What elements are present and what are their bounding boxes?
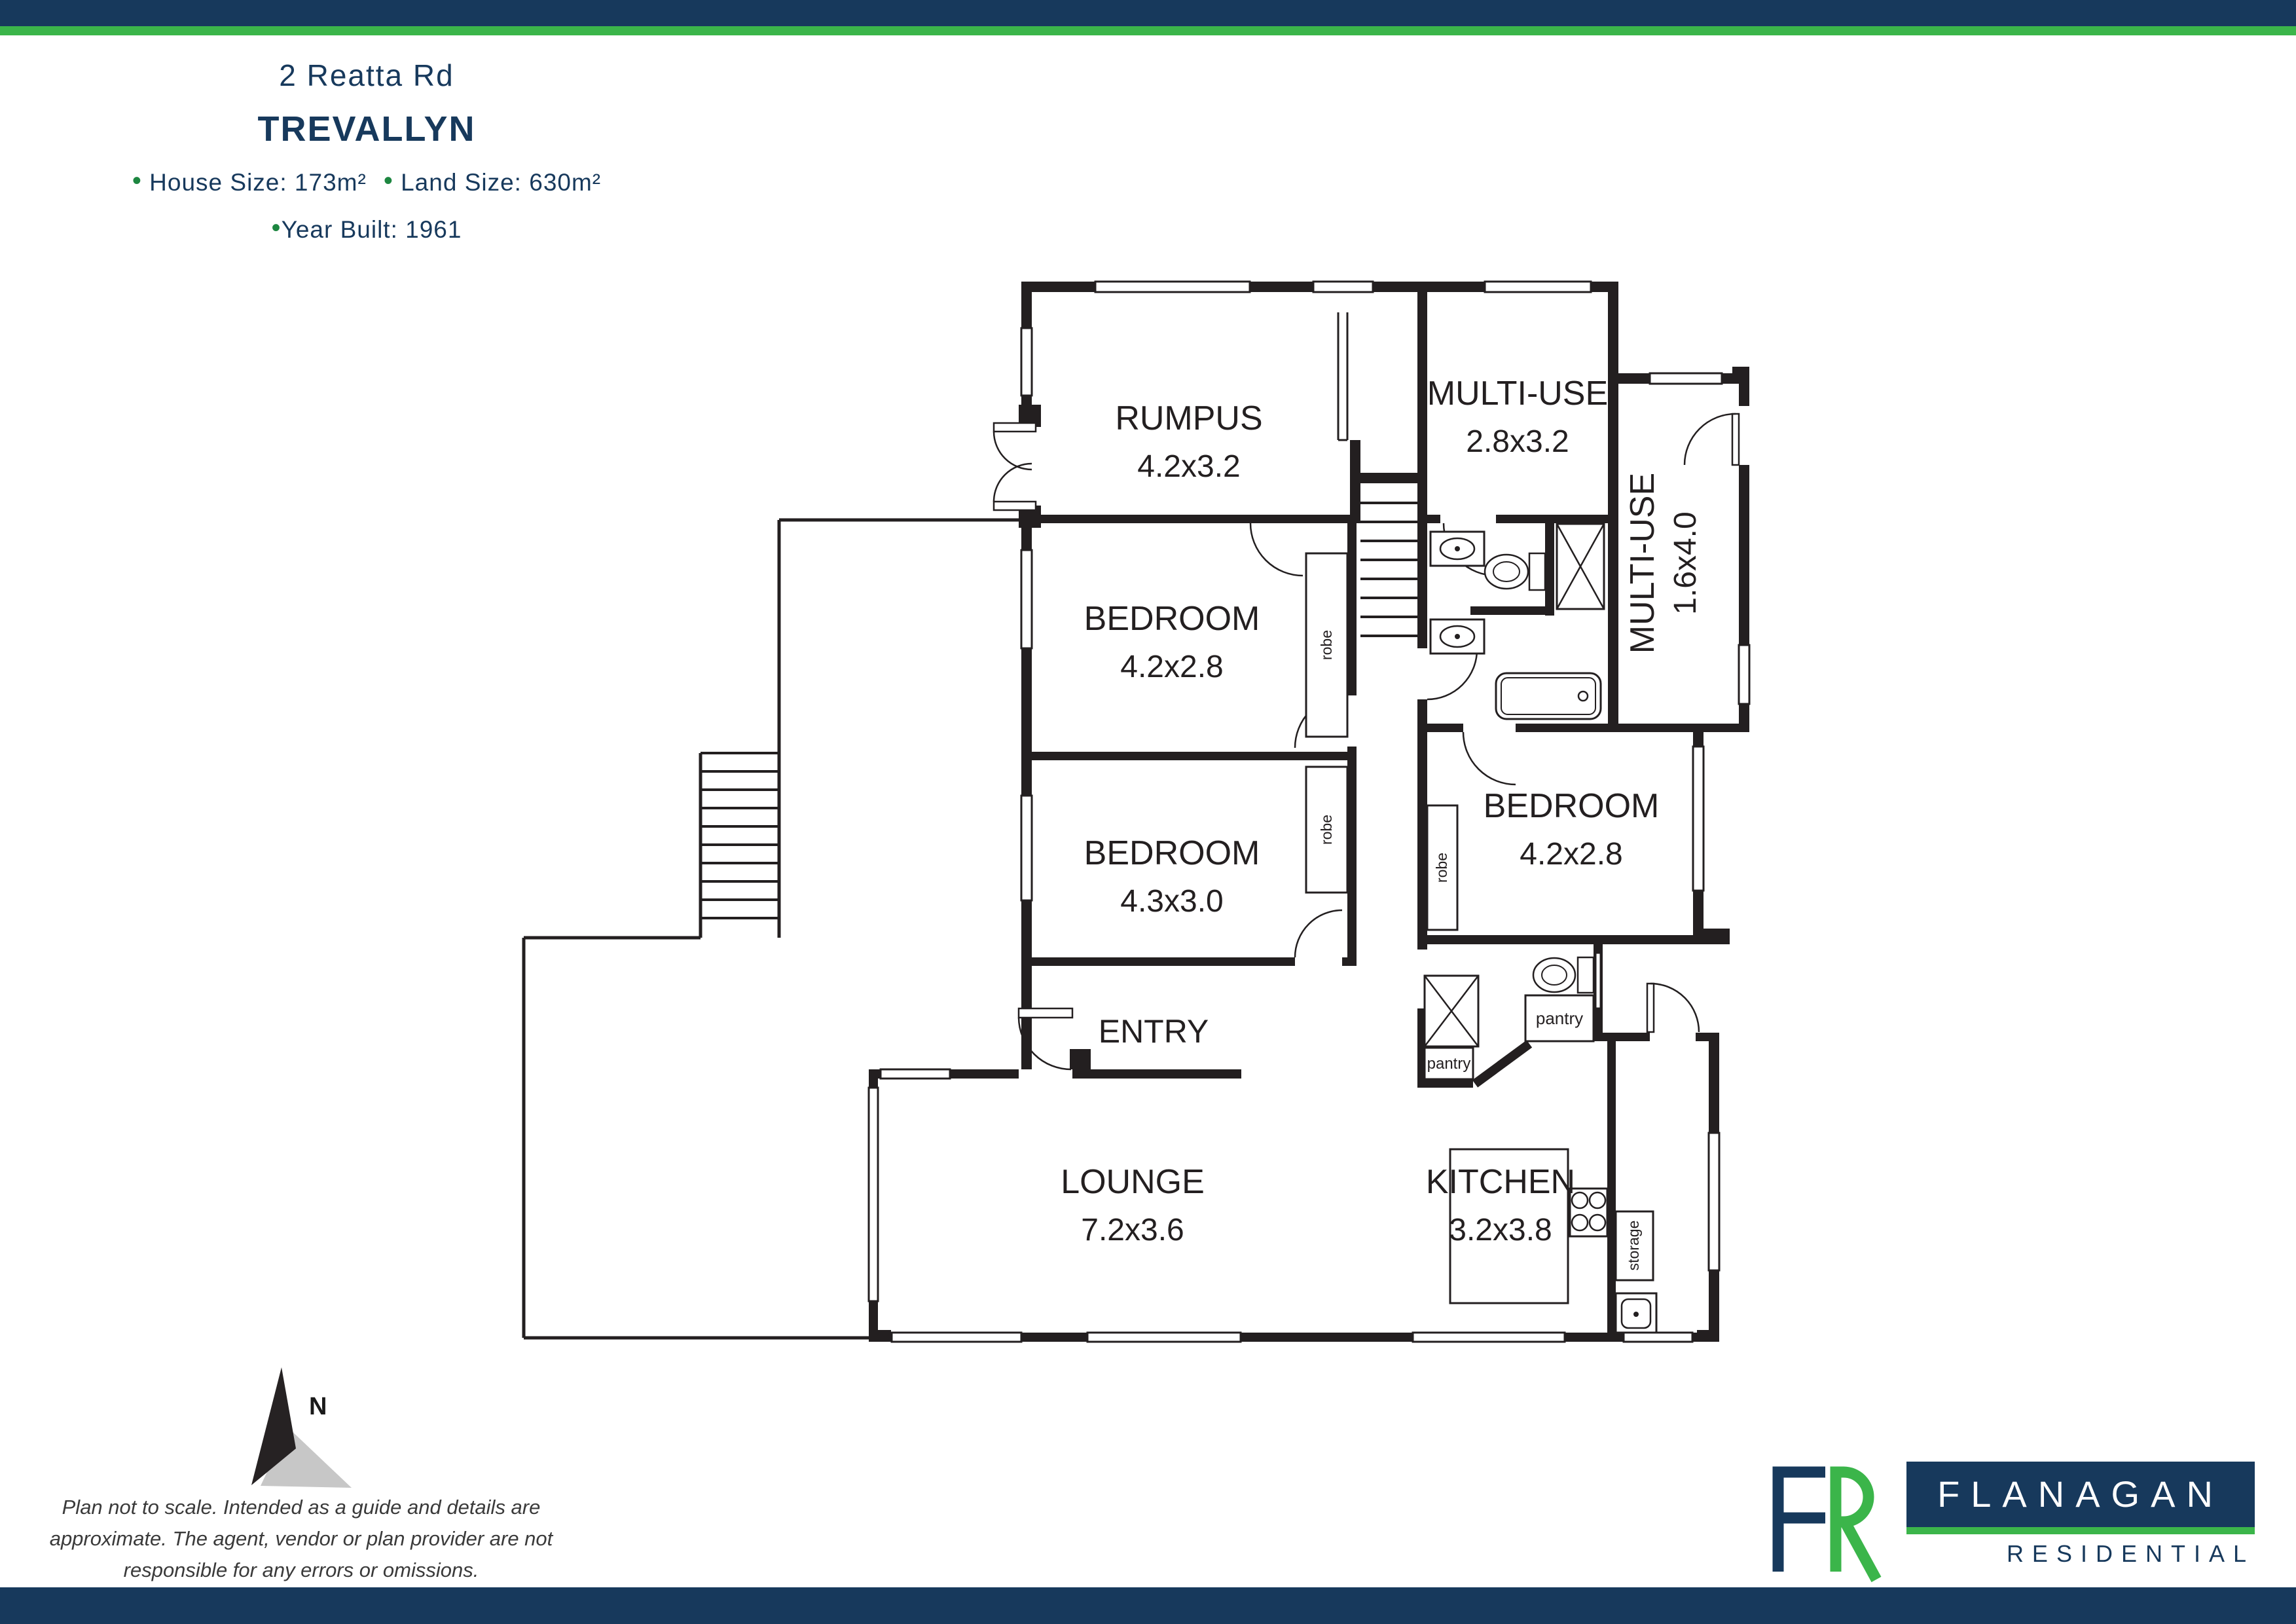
- stove-icon: [1570, 1189, 1607, 1236]
- pantry-label: pantry: [1536, 1008, 1583, 1028]
- room-label-kitchen: KITCHEN: [1426, 1163, 1575, 1201]
- room-dims-bedroom-2: 4.3x3.0: [1120, 884, 1223, 919]
- bathtub-icon: [1496, 673, 1601, 719]
- agency-logo: FLANAGAN RESIDENTIAL: [1768, 1441, 2265, 1585]
- bottom-navy-bar: [0, 1587, 2296, 1624]
- disclaimer-line: Plan not to scale. Intended as a guide a…: [39, 1492, 563, 1523]
- disclaimer: Plan not to scale. Intended as a guide a…: [39, 1492, 563, 1586]
- shower-icon: [1425, 976, 1478, 1046]
- room-dims-bedroom-3: 4.2x2.8: [1520, 837, 1622, 872]
- fr-monogram-icon: [1768, 1441, 1905, 1585]
- room-label-bedroom-1: BEDROOM: [1084, 600, 1260, 638]
- room-dims-bedroom-1: 4.2x2.8: [1120, 650, 1223, 684]
- room-dims-kitchen: 3.2x3.8: [1449, 1213, 1552, 1247]
- logo-tagline: RESIDENTIAL: [1906, 1540, 2255, 1568]
- logo-name: FLANAGAN: [1937, 1473, 2224, 1515]
- room-label-bedroom-3: BEDROOM: [1484, 787, 1660, 825]
- room-label-rumpus: RUMPUS: [1115, 399, 1262, 437]
- toilet-icon: [1533, 957, 1594, 993]
- exterior-stair-treads: [701, 753, 779, 918]
- room-label-lounge: LOUNGE: [1061, 1163, 1205, 1201]
- room-label-entry: ENTRY: [1099, 1013, 1209, 1050]
- room-label-multiuse-2: MULTI-USE: [1624, 473, 1662, 654]
- disclaimer-line: approximate. The agent, vendor or plan p…: [39, 1523, 563, 1555]
- logo-name-box: FLANAGAN: [1906, 1462, 2255, 1534]
- robe-label: robe: [1433, 853, 1450, 883]
- deck-and-exterior-stairs: [524, 520, 1021, 1338]
- room-label-bedroom-2: BEDROOM: [1084, 834, 1260, 872]
- room-dims-multiuse-2: 1.6x4.0: [1668, 511, 1703, 614]
- shower-icon: [1557, 524, 1604, 609]
- compass-north-label: N: [309, 1393, 327, 1420]
- room-label-multiuse-1: MULTI-USE: [1427, 375, 1608, 413]
- kitchen-sink-icon: [1616, 1293, 1656, 1333]
- compass: N: [251, 1367, 352, 1488]
- room-labels: RUMPUS 4.2x3.2 MULTI-USE 2.8x3.2 MULTI-U…: [1061, 375, 1703, 1270]
- room-dims-multiuse-1: 2.8x3.2: [1466, 424, 1569, 459]
- disclaimer-line: responsible for any errors or omissions.: [39, 1555, 563, 1586]
- toilet-icon: [1485, 553, 1545, 590]
- room-dims-rumpus: 4.2x3.2: [1137, 449, 1240, 484]
- robe-label: robe: [1318, 815, 1335, 845]
- pantry-label: pantry: [1427, 1055, 1471, 1073]
- robe-label: robe: [1318, 630, 1335, 660]
- room-dims-lounge: 7.2x3.6: [1081, 1213, 1184, 1247]
- storage-label: storage: [1625, 1221, 1642, 1271]
- floor-plan: RUMPUS 4.2x3.2 MULTI-USE 2.8x3.2 MULTI-U…: [0, 0, 2296, 1624]
